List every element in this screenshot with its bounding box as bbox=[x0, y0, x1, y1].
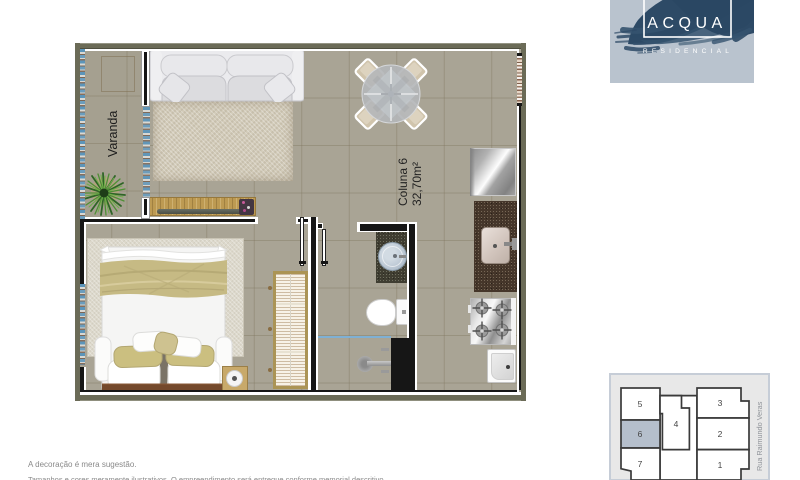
svg-text:Rua Raimundo Veras: Rua Raimundo Veras bbox=[755, 401, 764, 471]
svg-text:4: 4 bbox=[674, 419, 679, 429]
svg-text:6: 6 bbox=[638, 429, 643, 439]
svg-text:2: 2 bbox=[718, 429, 723, 439]
svg-text:5: 5 bbox=[638, 399, 643, 409]
svg-text:ACQUA: ACQUA bbox=[647, 15, 726, 32]
svg-text:7: 7 bbox=[638, 459, 643, 469]
svg-text:3: 3 bbox=[718, 398, 723, 408]
svg-text:1: 1 bbox=[718, 460, 723, 470]
svg-text:RESIDENCIAL: RESIDENCIAL bbox=[643, 48, 733, 55]
